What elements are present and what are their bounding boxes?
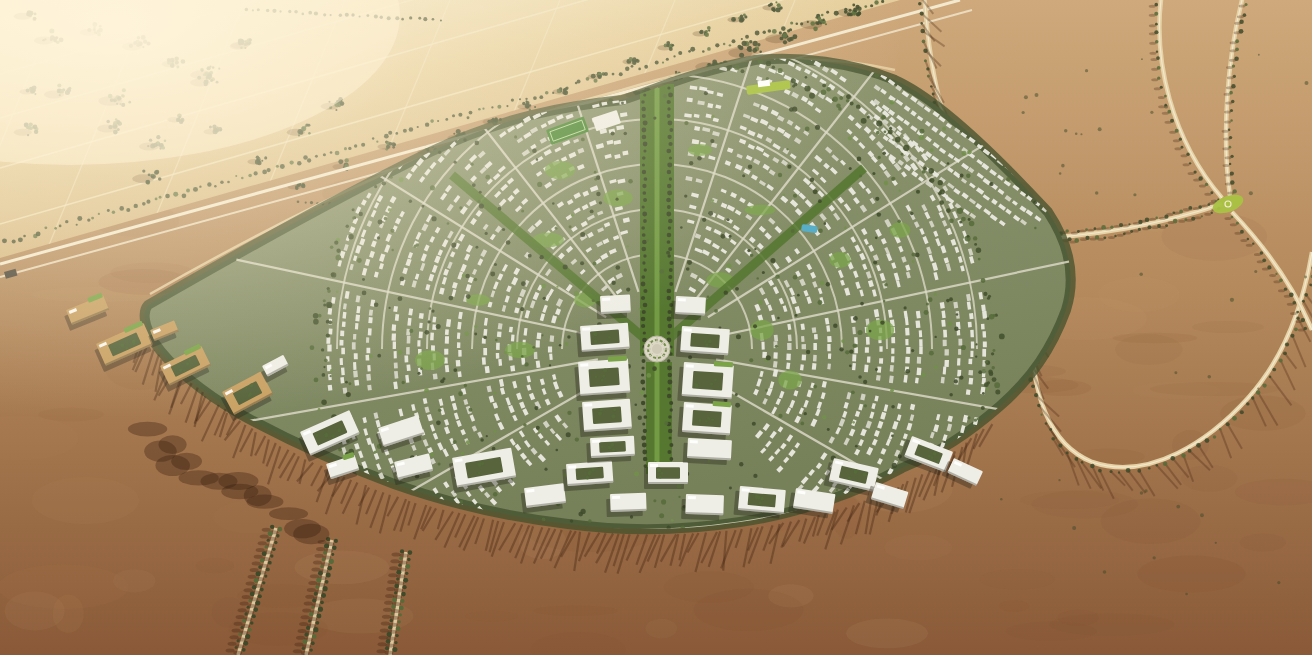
aerial-render [0,0,1312,655]
aerial-render-canvas [0,0,1312,655]
sun-glare [0,0,1312,655]
